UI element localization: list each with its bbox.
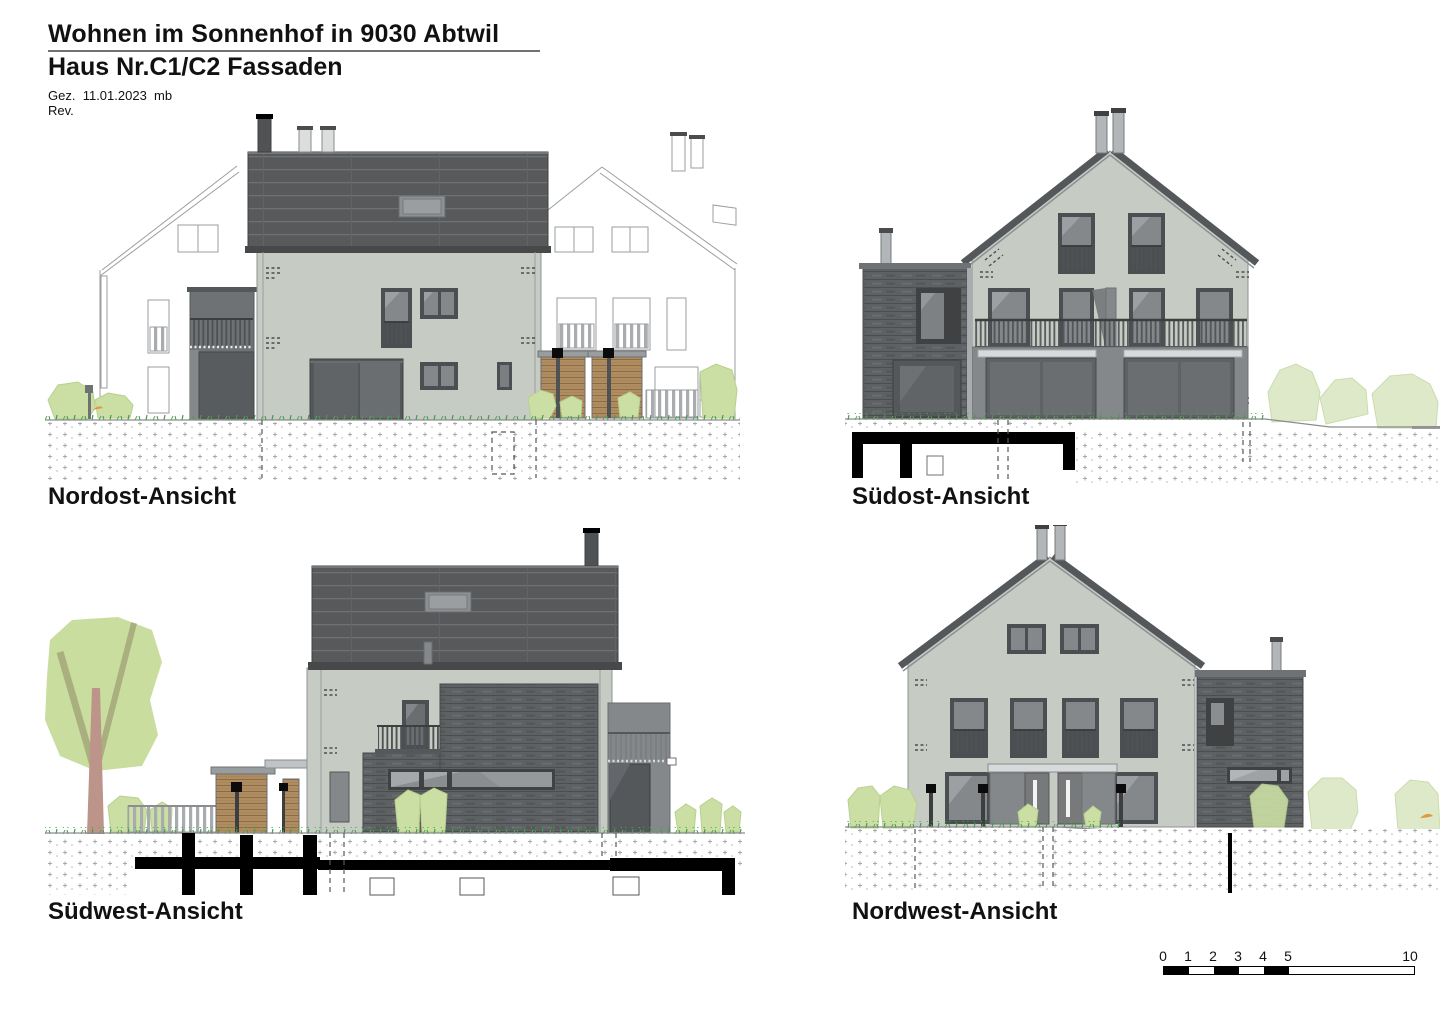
- band-window: [388, 769, 555, 790]
- main-building: [307, 528, 622, 833]
- window-slit: [497, 362, 512, 390]
- elevation-suedost-drawing: [845, 100, 1440, 485]
- balcony-balustrade: [975, 320, 1247, 347]
- shingle-wall-upper: [440, 684, 598, 833]
- scale-tick-1: 1: [1184, 948, 1192, 964]
- gable-window: [1128, 213, 1165, 274]
- annex-right: [608, 703, 676, 833]
- window-pair-upper: [420, 288, 458, 319]
- scale-tick-10: 10: [1402, 948, 1418, 964]
- scale-tick-0: 0: [1159, 948, 1167, 964]
- window-pair-lower: [420, 362, 458, 390]
- elevation-nordwest-drawing: [845, 525, 1440, 897]
- scale-tick-2: 2: [1209, 948, 1217, 964]
- elevation-nordost-drawing: [45, 110, 740, 482]
- scale-tick-5: 5: [1284, 948, 1292, 964]
- window-french: [381, 288, 412, 348]
- drawn-date: 11.01.2023: [83, 88, 147, 103]
- ground: [45, 414, 740, 480]
- scale-tick-3: 3: [1234, 948, 1242, 964]
- main-building: [900, 525, 1203, 827]
- label-suedwest-ansicht: Südwest-Ansicht: [48, 898, 243, 926]
- label-nordwest-ansicht: Nordwest-Ansicht: [852, 898, 1057, 926]
- ground: [845, 821, 1440, 893]
- main-building: [963, 108, 1257, 418]
- greenery: [1268, 364, 1440, 432]
- section-walls: [852, 432, 1075, 478]
- scale-tick-4: 4: [1259, 948, 1267, 964]
- tree: [45, 617, 162, 834]
- greenery-left: [108, 796, 218, 832]
- scale-bar-ruler: [1163, 966, 1415, 975]
- annex-left-shingle: [859, 228, 972, 418]
- drawing-subtitle: Haus Nr.C1/C2 Fassaden: [48, 53, 343, 82]
- elevation-suedwest-drawing: [40, 525, 745, 897]
- main-building: [245, 114, 551, 420]
- drawn-by: mb: [154, 88, 172, 103]
- sliding-door: [310, 359, 403, 420]
- label-nordost-ansicht: Nordost-Ansicht: [48, 483, 236, 511]
- ground: [45, 827, 745, 897]
- title-underline: [48, 50, 540, 52]
- scale-bar: 0 1 2 3 4 5 10: [1160, 948, 1416, 982]
- drawn-label: Gez.: [48, 88, 75, 103]
- drawn-line: Gez. 11.01.2023 mb: [48, 88, 172, 103]
- annex-left: [187, 287, 257, 420]
- ground-floor: [972, 347, 1248, 418]
- gable-window: [1058, 213, 1095, 274]
- side-door: [330, 772, 349, 822]
- label-suedost-ansicht: Südost-Ansicht: [852, 483, 1029, 511]
- ground: [845, 413, 1440, 485]
- wooden-shed: [211, 760, 312, 833]
- drawing-title: Wohnen im Sonnenhof in 9030 Abtwil: [48, 20, 499, 49]
